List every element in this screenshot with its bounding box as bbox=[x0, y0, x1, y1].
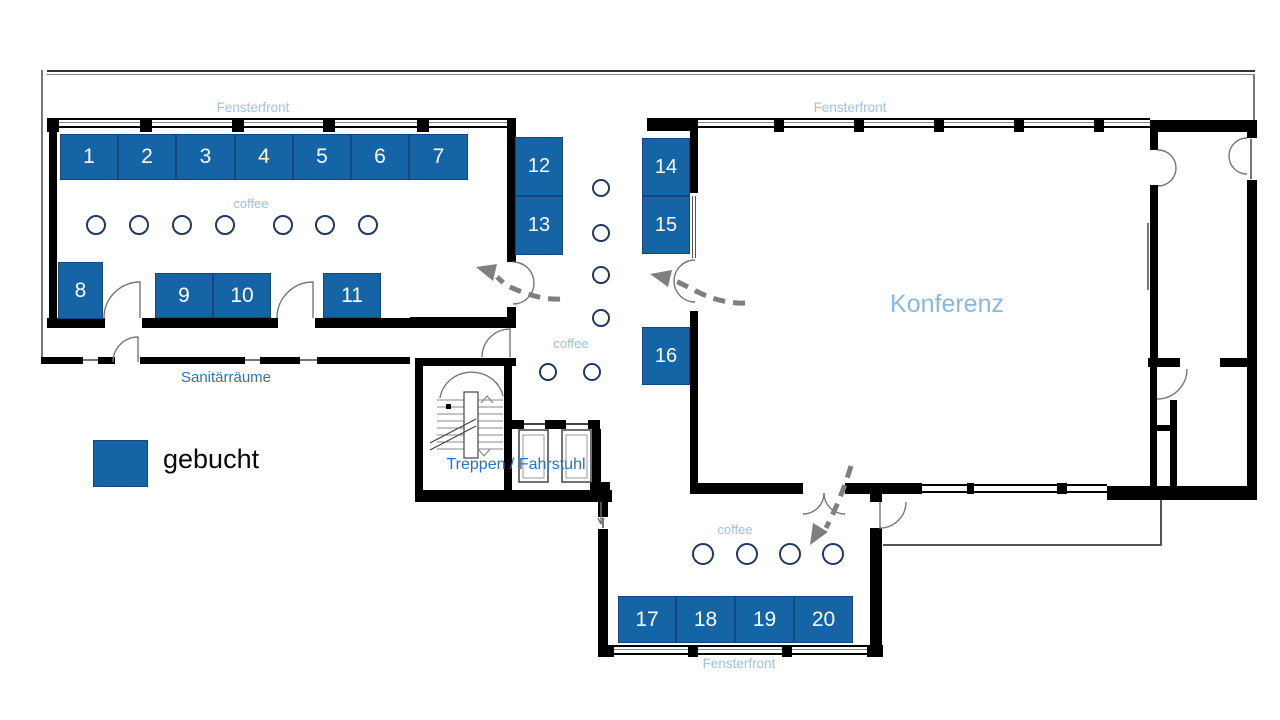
booth-20[interactable]: 20 bbox=[794, 596, 853, 643]
wall bbox=[598, 529, 608, 655]
wall bbox=[49, 118, 57, 328]
wall bbox=[512, 420, 524, 429]
booth-6[interactable]: 6 bbox=[351, 134, 409, 180]
wall bbox=[588, 420, 600, 429]
wall bbox=[690, 483, 803, 494]
wall-pier bbox=[417, 118, 429, 132]
chair-circle bbox=[539, 363, 557, 381]
wall bbox=[1150, 132, 1158, 150]
wall bbox=[140, 357, 245, 364]
booth-15[interactable]: 15 bbox=[642, 196, 690, 254]
wall bbox=[415, 358, 512, 366]
terrace-outline bbox=[883, 500, 1161, 545]
booth-2[interactable]: 2 bbox=[118, 134, 176, 180]
chair-circle bbox=[215, 215, 235, 235]
window-band bbox=[598, 645, 883, 655]
wall bbox=[415, 358, 423, 502]
wall bbox=[47, 318, 105, 328]
chair-circle bbox=[736, 543, 758, 565]
wall bbox=[410, 317, 516, 328]
stairs bbox=[430, 392, 503, 458]
wall bbox=[142, 318, 278, 328]
wall-pier bbox=[774, 118, 784, 132]
booth-16[interactable]: 16 bbox=[642, 327, 690, 385]
wall bbox=[1150, 185, 1158, 358]
wall-pier bbox=[323, 118, 335, 132]
chair-circle bbox=[315, 215, 335, 235]
coffee-label-corridor: coffee bbox=[531, 336, 611, 351]
wall bbox=[1107, 486, 1257, 500]
wall-pier bbox=[1094, 118, 1104, 132]
wall bbox=[598, 493, 608, 517]
booth-18[interactable]: 18 bbox=[676, 596, 735, 643]
wall bbox=[647, 118, 698, 131]
booth-19[interactable]: 19 bbox=[735, 596, 794, 643]
wall-pier bbox=[854, 118, 864, 132]
coffee-label-bottom-room: coffee bbox=[695, 522, 775, 537]
chair-circle bbox=[592, 224, 610, 242]
chair-circle bbox=[592, 266, 610, 284]
chair-circle bbox=[592, 179, 610, 197]
wall bbox=[98, 357, 115, 364]
booth-3[interactable]: 3 bbox=[176, 134, 235, 180]
booth-10[interactable]: 10 bbox=[213, 273, 271, 318]
legend-booked-label: gebucht bbox=[163, 444, 259, 475]
entrance-arrow-heads bbox=[476, 264, 828, 545]
wall bbox=[545, 420, 566, 429]
wall bbox=[1247, 180, 1257, 358]
booth-12[interactable]: 12 bbox=[515, 137, 563, 196]
booth-4[interactable]: 4 bbox=[235, 134, 293, 180]
wall bbox=[1247, 132, 1257, 138]
wall bbox=[870, 492, 882, 502]
booth-9[interactable]: 9 bbox=[155, 273, 213, 318]
booth-1[interactable]: 1 bbox=[60, 134, 118, 180]
booth-7[interactable]: 7 bbox=[409, 134, 468, 180]
chair-circle bbox=[583, 363, 601, 381]
chair-circle bbox=[273, 215, 293, 235]
booth-11[interactable]: 11 bbox=[323, 273, 381, 318]
chair-circle bbox=[86, 215, 106, 235]
booth-8[interactable]: 8 bbox=[58, 262, 103, 319]
chair-circle bbox=[822, 543, 844, 565]
booth-5[interactable]: 5 bbox=[293, 134, 351, 180]
facade-line-top bbox=[47, 70, 1255, 75]
wall bbox=[315, 318, 410, 328]
glass-partition bbox=[692, 196, 696, 258]
wall bbox=[1247, 367, 1257, 500]
chair-circle bbox=[692, 543, 714, 565]
fensterfront-label-bottom: Fensterfront bbox=[679, 656, 799, 671]
window-band bbox=[698, 118, 1150, 128]
wall bbox=[415, 490, 612, 502]
wall-pier bbox=[1014, 118, 1024, 132]
wall-pier bbox=[140, 118, 152, 132]
chair-circle bbox=[172, 215, 192, 235]
coffee-label-left-room: coffee bbox=[211, 196, 291, 211]
wall bbox=[1170, 400, 1177, 493]
konferenz-room-label: Konferenz bbox=[847, 290, 1047, 319]
window-band bbox=[922, 484, 1107, 493]
wall bbox=[317, 357, 410, 364]
booth-13[interactable]: 13 bbox=[515, 196, 563, 255]
wall bbox=[870, 528, 882, 655]
wall bbox=[1150, 120, 1257, 132]
wall bbox=[1150, 425, 1177, 431]
wall bbox=[845, 483, 922, 494]
wall bbox=[690, 311, 698, 490]
wall bbox=[690, 131, 698, 193]
wall-pier bbox=[598, 645, 614, 657]
wall bbox=[1220, 358, 1257, 367]
legend-booked-swatch bbox=[93, 440, 148, 487]
wall-pier bbox=[1057, 483, 1067, 494]
wall-pier bbox=[967, 483, 974, 494]
sanitaerraeume-label: Sanitärräume bbox=[146, 369, 306, 386]
window-band bbox=[47, 118, 516, 128]
booth-14[interactable]: 14 bbox=[642, 138, 690, 196]
wall bbox=[260, 357, 300, 364]
chair-circle bbox=[129, 215, 149, 235]
booth-17[interactable]: 17 bbox=[618, 596, 676, 643]
wall-pier bbox=[232, 118, 244, 132]
treppen-fahrstuhl-label: Treppen / Fahrstuhl bbox=[438, 456, 594, 474]
wall bbox=[41, 357, 83, 364]
floor-plan: 1 2 3 4 5 6 7 8 9 10 11 12 13 14 15 16 1… bbox=[0, 0, 1280, 720]
wall-pier bbox=[934, 118, 944, 132]
chair-circle bbox=[358, 215, 378, 235]
wall bbox=[507, 307, 516, 328]
chair-circle bbox=[779, 543, 801, 565]
facade-line-left bbox=[41, 70, 43, 363]
fensterfront-label-top-right: Fensterfront bbox=[790, 100, 910, 115]
fensterfront-label-top-left: Fensterfront bbox=[193, 100, 313, 115]
window-glass bbox=[1250, 139, 1252, 179]
wall-pier bbox=[867, 645, 883, 657]
chair-circle bbox=[592, 309, 610, 327]
wall bbox=[1148, 358, 1180, 367]
wall bbox=[590, 482, 610, 493]
